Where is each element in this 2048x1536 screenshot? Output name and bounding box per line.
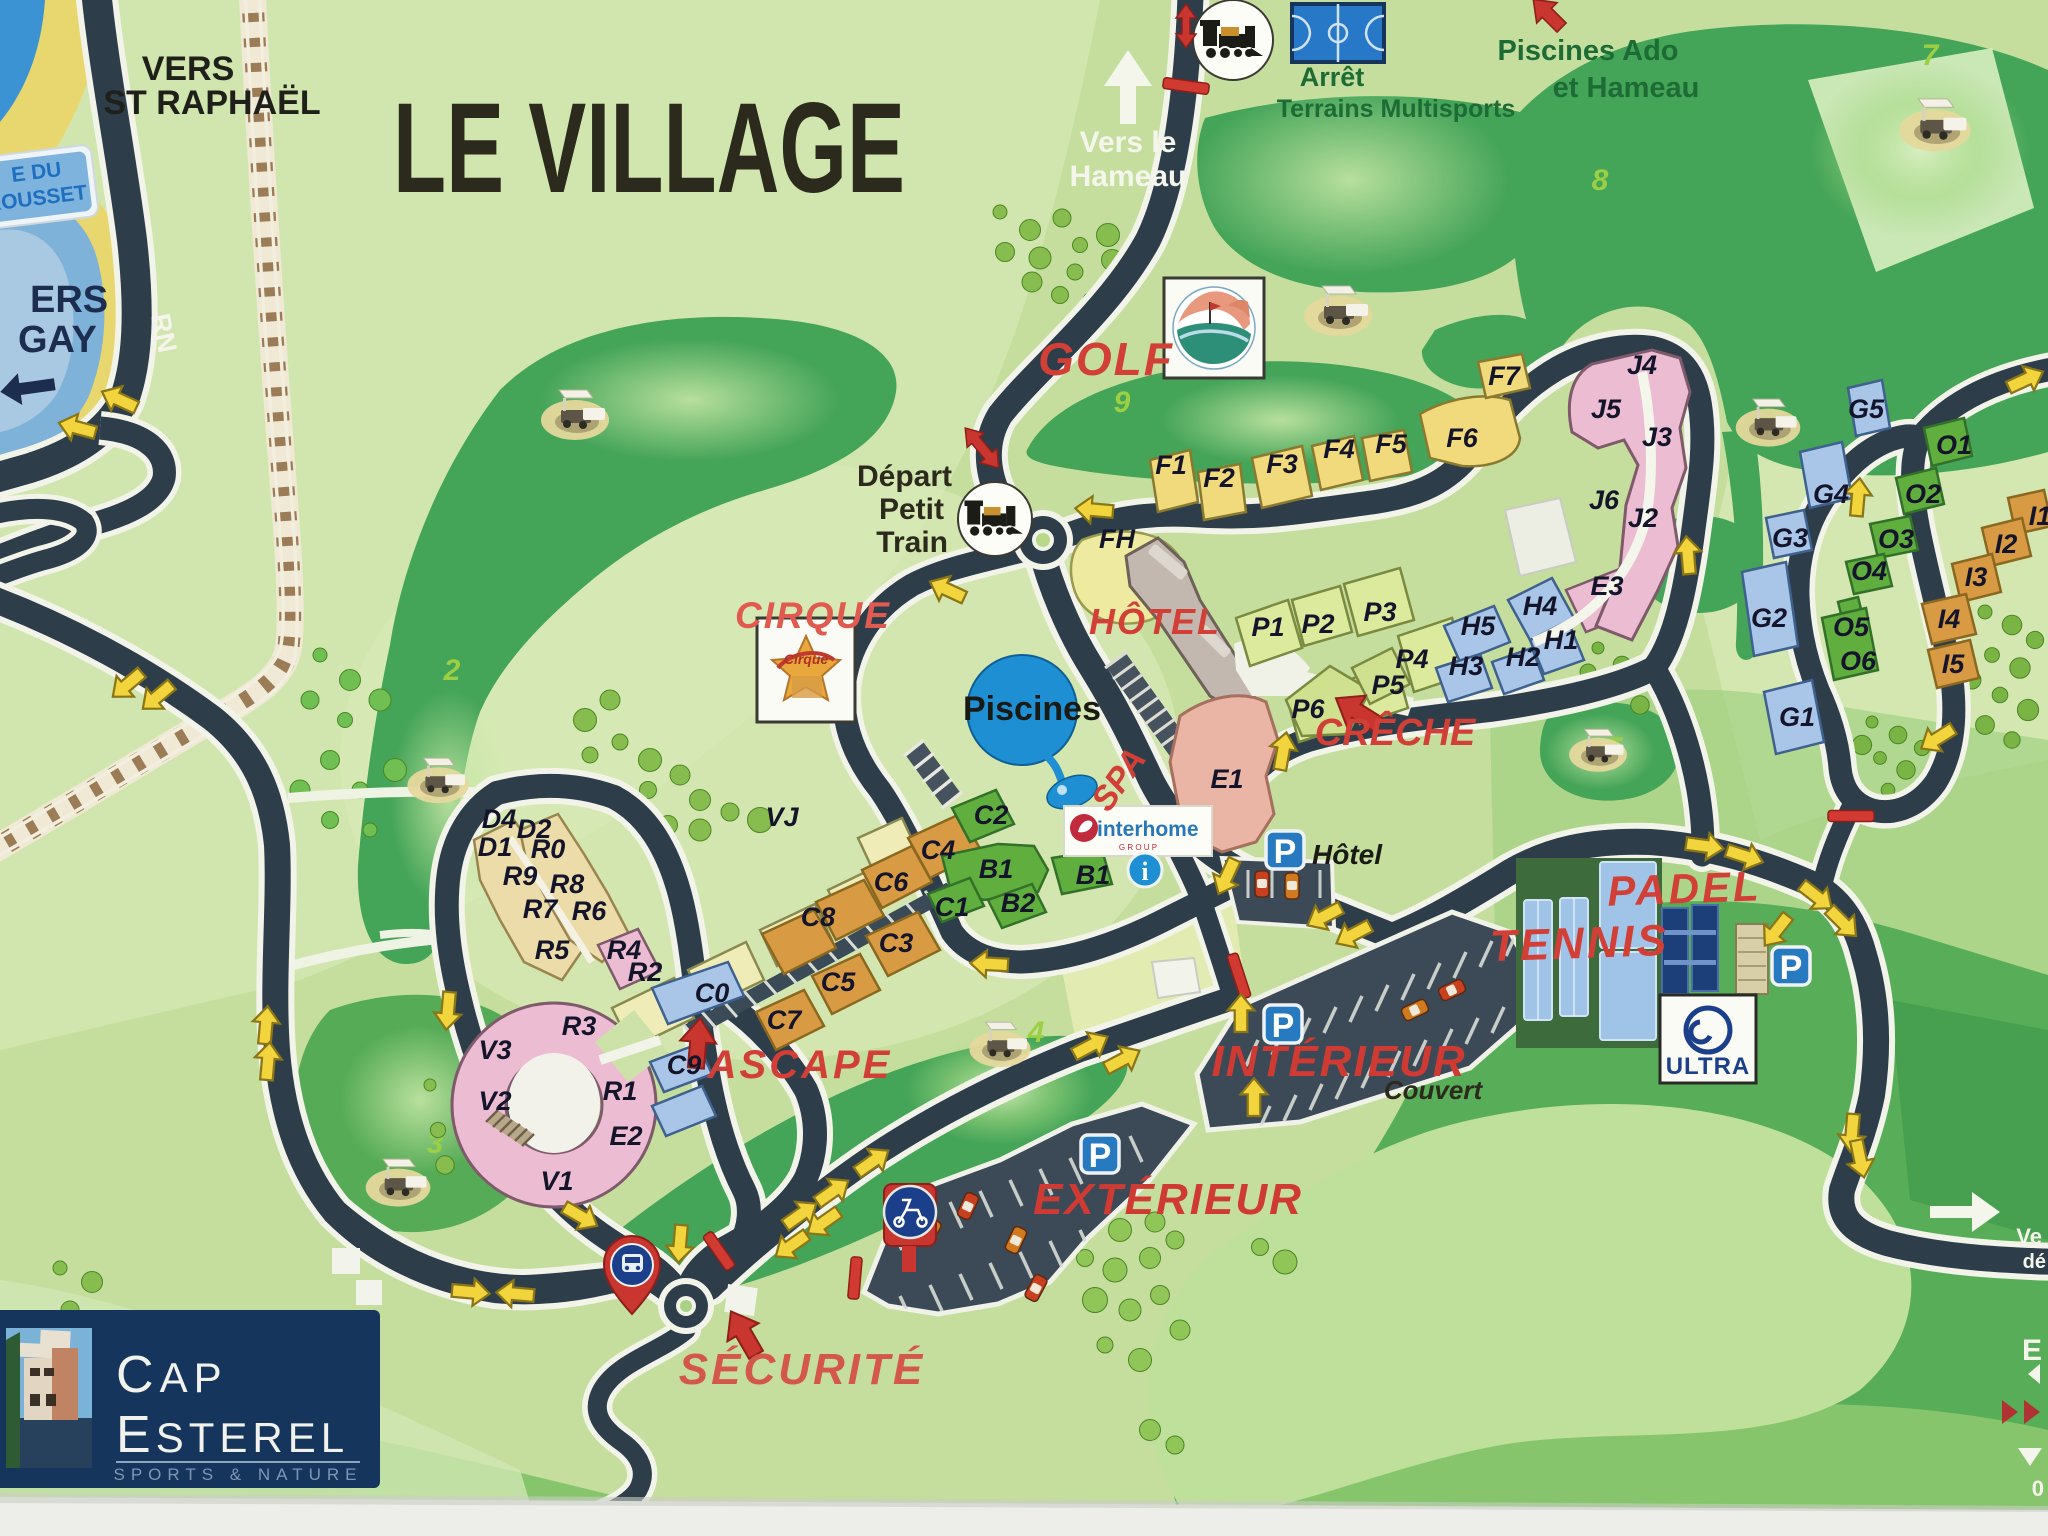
svg-text:9: 9	[1114, 386, 1131, 419]
svg-text:TENNIS: TENNIS	[1489, 916, 1670, 971]
svg-text:R9: R9	[503, 861, 538, 891]
svg-text:R0: R0	[531, 834, 566, 864]
svg-text:C7: C7	[767, 1005, 803, 1035]
svg-text:ESTEREL: ESTEREL	[116, 1406, 349, 1464]
svg-text:O5: O5	[1833, 612, 1870, 642]
svg-text:P1: P1	[1251, 612, 1284, 642]
svg-text:SÉCURITÉ: SÉCURITÉ	[679, 1344, 925, 1394]
svg-text:C0: C0	[695, 978, 730, 1008]
svg-text:GAY: GAY	[18, 319, 97, 361]
svg-text:B2: B2	[1001, 888, 1036, 918]
svg-text:R2: R2	[628, 957, 663, 987]
svg-text:Hôtel: Hôtel	[1312, 839, 1383, 870]
svg-text:J2: J2	[1628, 503, 1658, 533]
svg-text:B1: B1	[1076, 860, 1111, 890]
svg-text:ST RAPHAËL: ST RAPHAËL	[103, 84, 320, 122]
svg-text:Hameau: Hameau	[1070, 160, 1187, 193]
svg-text:i: i	[1141, 857, 1148, 886]
svg-text:dé: dé	[2023, 1251, 2046, 1273]
svg-text:R1: R1	[603, 1076, 638, 1106]
svg-text:C4: C4	[921, 835, 956, 865]
svg-text:C2: C2	[974, 800, 1009, 830]
svg-text:4: 4	[1027, 1016, 1045, 1049]
svg-text:7: 7	[1922, 39, 1940, 72]
svg-text:E2: E2	[609, 1121, 642, 1151]
svg-text:G4: G4	[1813, 479, 1849, 509]
svg-text:V1: V1	[540, 1166, 573, 1196]
svg-text:J4: J4	[1627, 350, 1657, 380]
svg-text:C6: C6	[874, 867, 909, 897]
svg-text:interhome: interhome	[1097, 818, 1199, 841]
svg-text:F6: F6	[1446, 423, 1478, 453]
svg-text:Couvert: Couvert	[1384, 1075, 1484, 1105]
svg-text:O6: O6	[1840, 646, 1877, 676]
svg-text:HÔTEL: HÔTEL	[1089, 600, 1221, 642]
svg-text:Vers le: Vers le	[1080, 126, 1177, 159]
svg-text:H5: H5	[1461, 611, 1496, 641]
svg-text:H3: H3	[1449, 651, 1484, 681]
svg-text:et Hameau: et Hameau	[1553, 72, 1700, 104]
svg-text:J3: J3	[1642, 422, 1672, 452]
svg-text:ASCAPE: ASCAPE	[707, 1043, 893, 1087]
svg-text:P5: P5	[1371, 670, 1405, 700]
svg-text:LE VILLAGE: LE VILLAGE	[393, 77, 905, 220]
svg-text:CRÊCHE: CRÊCHE	[1315, 710, 1477, 754]
svg-text:GOLF: GOLF	[1038, 333, 1174, 385]
svg-text:J6: J6	[1589, 485, 1620, 515]
svg-text:R7: R7	[523, 894, 559, 924]
svg-text:FH: FH	[1099, 524, 1135, 554]
svg-text:ULTRA: ULTRA	[1666, 1053, 1751, 1080]
svg-text:P3: P3	[1363, 597, 1396, 627]
svg-text:H2: H2	[1506, 642, 1541, 672]
svg-text:EXTÉRIEUR: EXTÉRIEUR	[1033, 1174, 1303, 1224]
svg-text:R6: R6	[572, 896, 607, 926]
svg-text:V2: V2	[478, 1086, 511, 1116]
svg-text:I5: I5	[1942, 649, 1966, 679]
svg-text:D1: D1	[478, 832, 513, 862]
svg-text:E3: E3	[1590, 571, 1623, 601]
svg-text:G5: G5	[1848, 394, 1885, 424]
svg-text:I1: I1	[2029, 501, 2048, 531]
svg-text:Terrains Multisports: Terrains Multisports	[1277, 95, 1515, 123]
svg-text:G R O U P: G R O U P	[1119, 843, 1157, 852]
svg-text:B1: B1	[979, 854, 1014, 884]
svg-text:G2: G2	[1751, 603, 1787, 633]
svg-text:F5: F5	[1375, 429, 1407, 459]
svg-text:Piscines Ado: Piscines Ado	[1497, 35, 1678, 67]
svg-text:F7: F7	[1488, 361, 1521, 391]
svg-text:O3: O3	[1878, 524, 1914, 554]
svg-text:CAP: CAP	[116, 1346, 228, 1404]
svg-text:R5: R5	[535, 935, 570, 965]
svg-text:Cirque: Cirque	[784, 651, 829, 667]
svg-text:O2: O2	[1905, 479, 1941, 509]
svg-text:J5: J5	[1591, 394, 1622, 424]
svg-text:C1: C1	[935, 892, 970, 922]
svg-text:E: E	[2022, 1334, 2042, 1367]
svg-text:2: 2	[443, 654, 461, 687]
svg-text:F3: F3	[1266, 449, 1298, 479]
svg-text:O4: O4	[1851, 556, 1887, 586]
svg-text:Arrêt: Arrêt	[1300, 62, 1365, 92]
svg-text:VJ: VJ	[765, 802, 799, 832]
svg-text:CIRQUE: CIRQUE	[735, 595, 891, 636]
svg-text:Ve: Ve	[2016, 1224, 2042, 1249]
svg-text:P: P	[1780, 949, 1803, 987]
svg-text:C5: C5	[821, 967, 856, 997]
svg-text:Piscines: Piscines	[963, 690, 1101, 728]
svg-text:E1: E1	[1210, 764, 1243, 794]
svg-text:V3: V3	[478, 1035, 511, 1065]
svg-text:D4: D4	[482, 804, 517, 834]
svg-text:R3: R3	[562, 1011, 597, 1041]
svg-text:0: 0	[2032, 1476, 2044, 1501]
svg-text:P2: P2	[1301, 609, 1334, 639]
svg-text:F4: F4	[1323, 434, 1355, 464]
svg-text:F1: F1	[1155, 450, 1187, 480]
svg-text:C3: C3	[879, 928, 914, 958]
svg-text:I2: I2	[1995, 529, 2018, 559]
svg-text:Petit: Petit	[879, 493, 944, 526]
svg-text:ERS: ERS	[30, 279, 108, 321]
svg-text:VERS: VERS	[142, 50, 235, 88]
svg-text:P: P	[1274, 833, 1297, 871]
svg-text:Départ: Départ	[857, 460, 952, 493]
svg-text:I3: I3	[1965, 562, 1988, 592]
svg-text:H4: H4	[1523, 591, 1558, 621]
svg-text:P: P	[1089, 1137, 1112, 1175]
svg-text:Train: Train	[876, 526, 948, 559]
svg-text:C9: C9	[667, 1050, 702, 1080]
svg-text:F2: F2	[1203, 463, 1235, 493]
svg-text:PADEL: PADEL	[1607, 862, 1763, 914]
svg-text:I4: I4	[1938, 604, 1961, 634]
svg-text:C8: C8	[801, 902, 836, 932]
svg-text:G3: G3	[1772, 523, 1808, 553]
svg-text:O1: O1	[1936, 430, 1972, 460]
svg-text:G1: G1	[1779, 702, 1815, 732]
svg-text:SPORTS & NATURE: SPORTS & NATURE	[113, 1465, 362, 1484]
svg-text:8: 8	[1592, 164, 1609, 197]
svg-text:H1: H1	[1544, 625, 1579, 655]
